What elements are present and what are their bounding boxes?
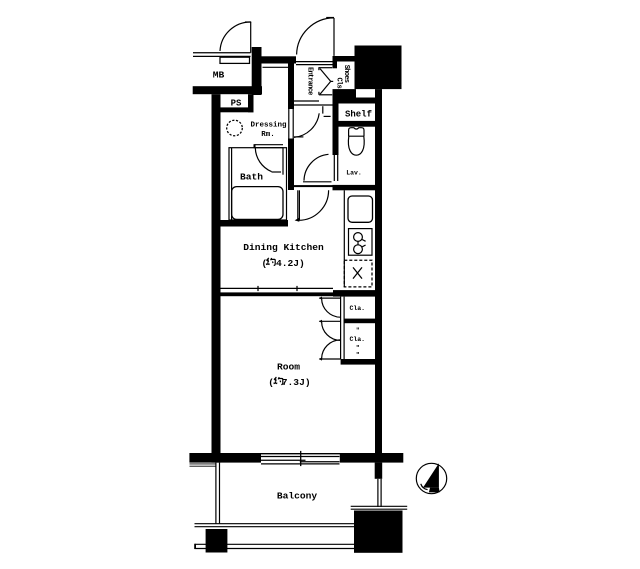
svg-text:": " xyxy=(356,352,360,359)
svg-text:Cla.: Cla. xyxy=(349,336,365,343)
svg-text:Dining Kitchen: Dining Kitchen xyxy=(243,242,324,253)
svg-text:Rm.: Rm. xyxy=(261,131,275,139)
svg-text:(: ( xyxy=(268,377,274,388)
svg-text:Shelf: Shelf xyxy=(345,110,372,120)
svg-text:Dressing: Dressing xyxy=(250,122,287,130)
svg-text:MB: MB xyxy=(213,70,225,81)
svg-text:Lav.: Lav. xyxy=(346,170,362,177)
svg-text:Balcony: Balcony xyxy=(277,491,318,502)
svg-text:": " xyxy=(356,327,360,334)
svg-text:Entrance: Entrance xyxy=(306,67,314,95)
svg-text:Shoes: Shoes xyxy=(342,65,350,83)
svg-text:Bath: Bath xyxy=(240,172,263,183)
svg-text:": " xyxy=(356,345,360,352)
svg-text:4.2J): 4.2J) xyxy=(276,258,305,269)
svg-text:Cla.: Cla. xyxy=(349,305,365,312)
svg-text:7.3J): 7.3J) xyxy=(282,377,311,388)
svg-text:Room: Room xyxy=(277,362,300,373)
svg-text:PS: PS xyxy=(231,98,242,108)
